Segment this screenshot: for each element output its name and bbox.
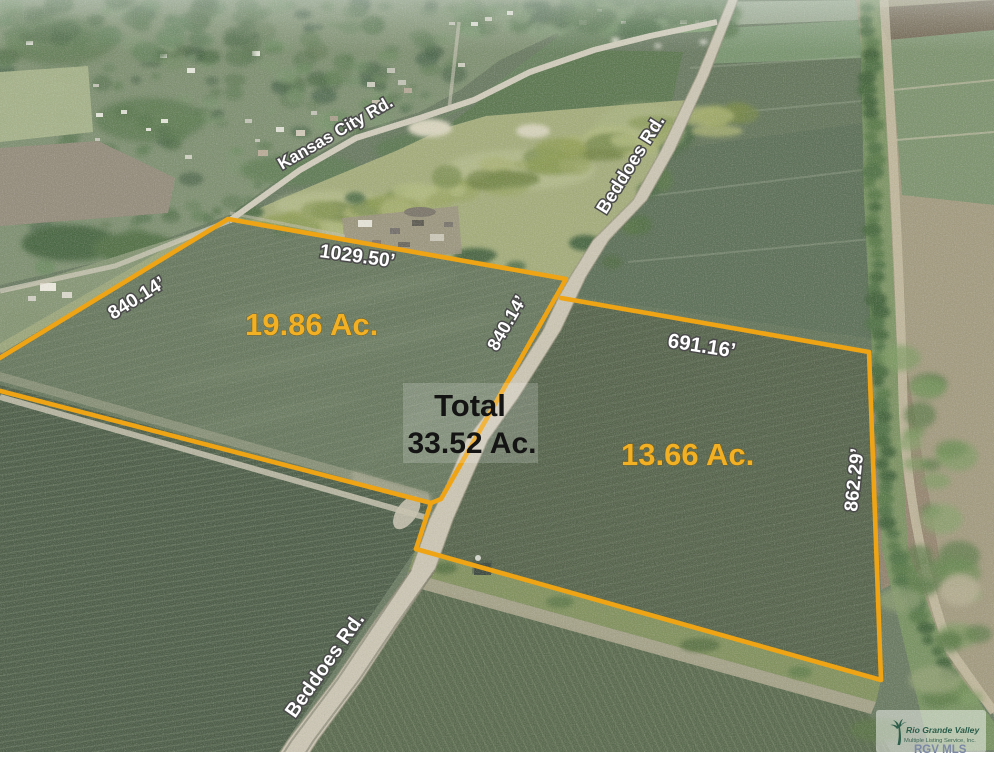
svg-text:RGV MLS: RGV MLS (914, 744, 967, 756)
svg-text:13.66 Ac.: 13.66 Ac. (621, 437, 754, 472)
svg-text:33.52 Ac.: 33.52 Ac. (408, 427, 537, 460)
svg-text:Rio Grande Valley: Rio Grande Valley (906, 725, 980, 735)
svg-text:Total: Total (434, 388, 506, 423)
svg-text:19.86 Ac.: 19.86 Ac. (245, 307, 378, 342)
